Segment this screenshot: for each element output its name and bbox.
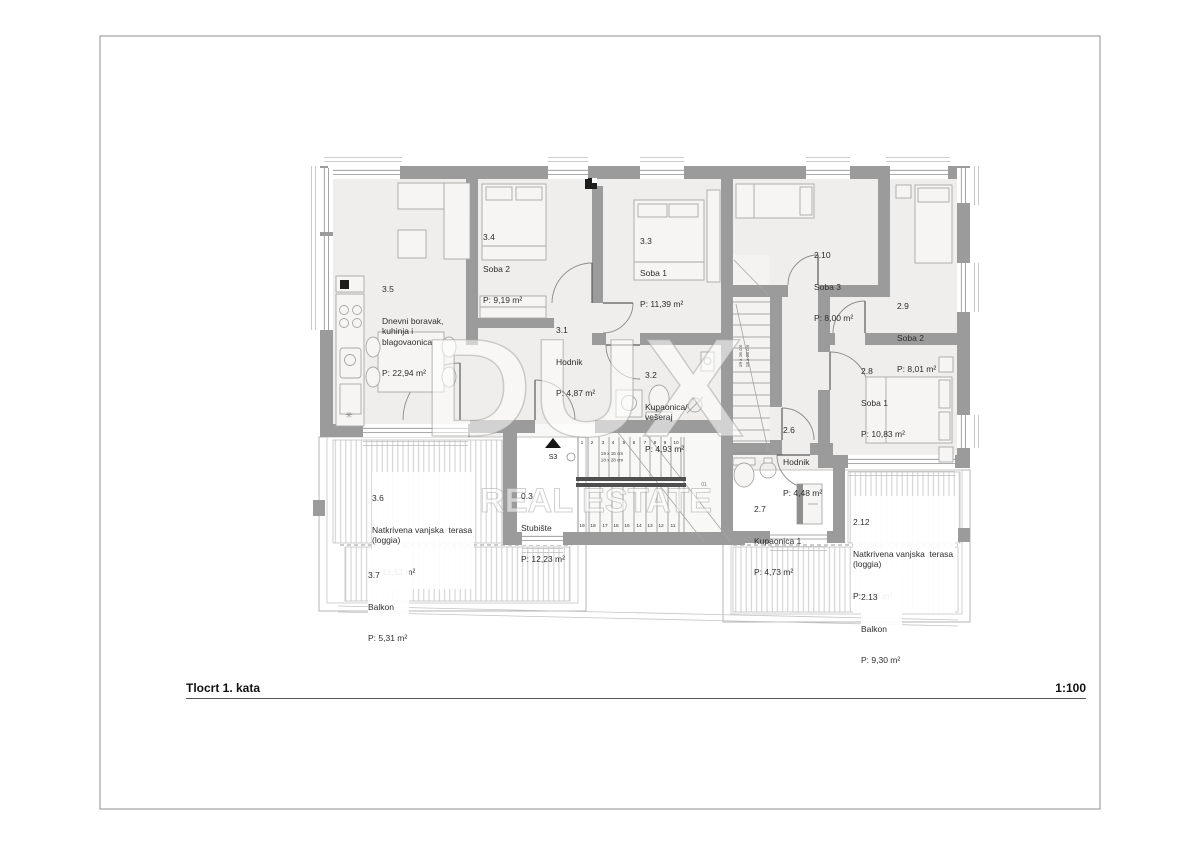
room-label-3-4: 3.4 Soba 2 P: 9,19 m² <box>483 211 522 316</box>
room-id: 2.13 <box>861 592 900 603</box>
room-label-2-13: 2.13 Balkon P: 9,30 m² <box>861 571 902 677</box>
watermark-tagline: REAL ESTATE <box>480 482 712 520</box>
room-name: Soba 2 <box>483 264 522 275</box>
room-id: 2.10 <box>814 250 853 261</box>
room-name: Soba 1 <box>640 268 683 279</box>
drawing-title: Tlocrt 1. kata <box>186 681 260 695</box>
room-label-3-7: 3.7 Balkon P: 5,31 m² <box>368 549 409 655</box>
floorplan-drawing: S3 19 x 16 cm 18 x 28 cm 19 x 16 cm 18 x… <box>0 0 1200 848</box>
floorplan-page: S3 19 x 16 cm 18 x 28 cm 19 x 16 cm 18 x… <box>0 0 1200 848</box>
room-area: P: 5,31 m² <box>368 633 407 644</box>
svg-text:11: 11 <box>671 523 676 529</box>
room-name: Stubište <box>521 523 565 534</box>
nightstand <box>939 447 953 462</box>
pillow <box>939 412 950 440</box>
room-id: 3.2 <box>645 370 688 381</box>
room-area: P: 9,30 m² <box>861 655 900 666</box>
stair-dim-2-rotated: 18 x 28 cm <box>745 345 750 368</box>
svg-text:17: 17 <box>602 523 608 529</box>
room-area: P: 10,83 m² <box>861 429 905 440</box>
room-id: 3.7 <box>368 570 407 581</box>
room-area: P: 4,93 m² <box>645 444 688 455</box>
room-name: Dnevni boravak, kuhinja i blagovaonica <box>382 316 474 348</box>
svg-text:14: 14 <box>636 523 642 529</box>
room-id: 2.7 <box>754 504 801 515</box>
room-label-3-1: 3.1 Hodnik P: 4,87 m² <box>556 304 595 409</box>
room-name: Soba 2 <box>897 333 936 344</box>
room-id: 2.6 <box>783 425 822 436</box>
nightstand <box>939 357 953 372</box>
kitchen-sink <box>340 348 361 378</box>
room-area: P: 4,87 m² <box>556 388 595 399</box>
room-label-2-8: 2.8 Soba 1 P: 10,83 m² <box>861 345 905 450</box>
chair <box>366 367 380 387</box>
room-id: 0.3 <box>521 491 565 502</box>
pillow <box>516 187 542 200</box>
drawing-scale: 1:100 <box>1030 681 1086 695</box>
svg-text:12: 12 <box>658 523 664 529</box>
room-id: 3.6 <box>372 493 472 504</box>
chair <box>366 337 380 357</box>
room-name: Hodnik <box>556 357 595 368</box>
kitchen-sink-marker <box>340 280 349 289</box>
svg-text:16: 16 <box>613 523 619 529</box>
room-id: 3.4 <box>483 232 522 243</box>
tap <box>764 458 772 463</box>
sofa <box>444 183 470 259</box>
svg-text:19: 19 <box>579 523 585 529</box>
room-area: P: 12,23 m² <box>521 554 565 565</box>
room-name: Soba 3 <box>814 282 853 293</box>
coffee-table <box>398 230 426 258</box>
nightstand <box>896 185 911 198</box>
room-id: 2.12 <box>853 517 953 528</box>
room-area: P: 11,39 m² <box>640 299 683 310</box>
room-name: Natkrivena vanjska terasa (loggia) <box>372 525 472 546</box>
room-name: Natkrivena vanjska terasa (loggia) <box>853 549 953 570</box>
room-id: 3.3 <box>640 236 683 247</box>
room-area: P: 4,73 m² <box>754 567 801 578</box>
room-id: 2.8 <box>861 366 905 377</box>
room-id: 3.5 <box>382 284 474 295</box>
room-label-3-3: 3.3 Soba 1 P: 11,39 m² <box>640 215 683 320</box>
svg-text:15: 15 <box>624 523 630 529</box>
room-label-3-2: 3.2 Kupaonica/ vešeraj P: 4,93 m² <box>645 349 688 465</box>
room-name: Balkon <box>368 602 407 613</box>
room-id: 2.9 <box>897 301 936 312</box>
pillow <box>918 188 949 202</box>
room-name: Kupaonica 1 <box>754 536 801 547</box>
title-rule <box>186 698 1086 699</box>
svg-text:13: 13 <box>647 523 653 529</box>
room-area: P: 9,19 m² <box>483 295 522 306</box>
pillow <box>486 187 512 200</box>
room-label-2-10: 2.10 Soba 3 P: 8,00 m² <box>814 229 853 334</box>
room-name: Soba 1 <box>861 398 905 409</box>
room-name: Hodnik <box>783 457 822 468</box>
stair-rail <box>576 477 686 481</box>
room-area: P: 22,94 m² <box>382 368 474 379</box>
kitchen-symbol: ✳ <box>345 410 353 420</box>
room-label-0-3: 0.3 Stubište P: 12,23 m² <box>521 470 565 575</box>
room-area: P: 8,00 m² <box>814 313 853 324</box>
svg-text:18: 18 <box>590 523 596 529</box>
toilet <box>734 463 754 487</box>
room-id: 3.1 <box>556 325 595 336</box>
room-name: Balkon <box>861 624 900 635</box>
pillow <box>939 380 950 408</box>
wardrobe <box>707 190 720 282</box>
room-label-3-5: 3.5 Dnevni boravak, kuhinja i blagovaoni… <box>382 263 474 389</box>
room-label-2-7: 2.7 Kupaonica 1 P: 4,73 m² <box>754 483 801 588</box>
pillow <box>800 187 812 215</box>
room-name: Kupaonica/ vešeraj <box>645 402 688 423</box>
